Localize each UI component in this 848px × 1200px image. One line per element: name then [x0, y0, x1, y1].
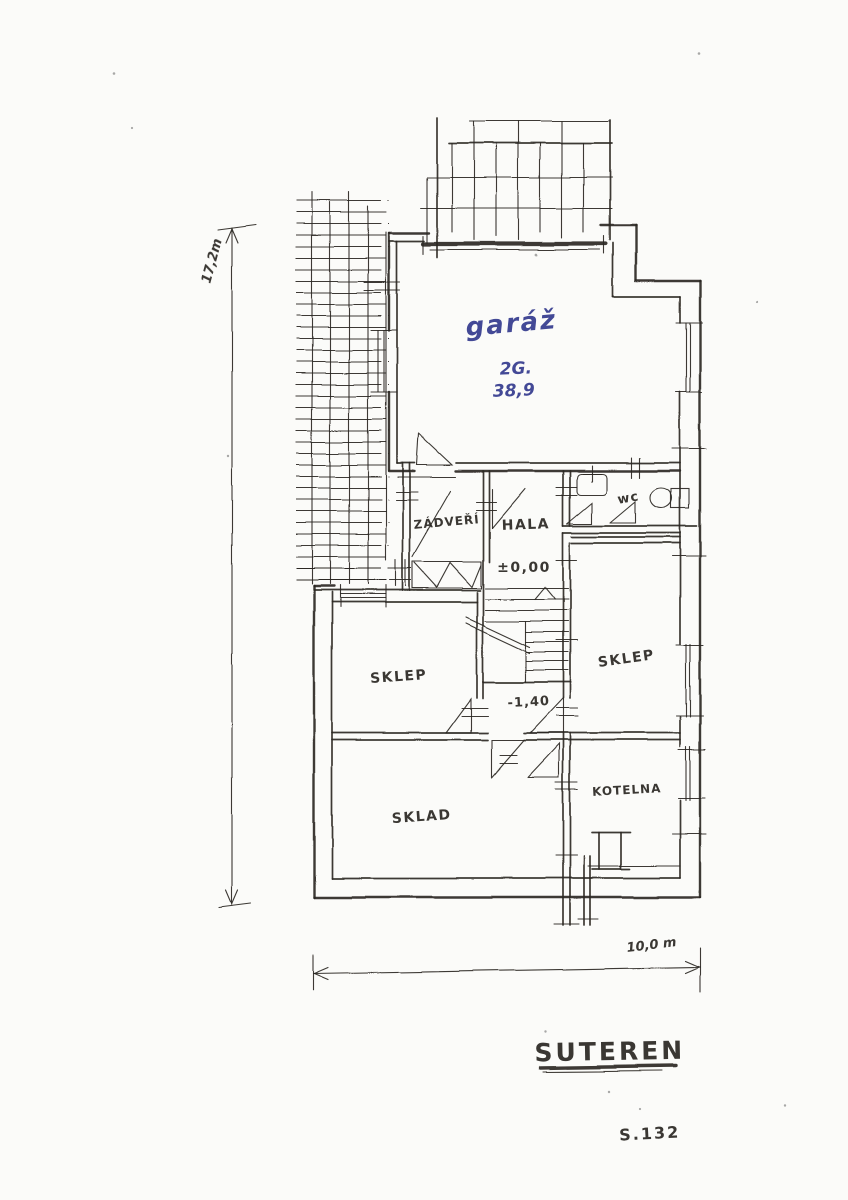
dimension-line-vertical [218, 225, 256, 907]
storage-label: SKLAD [391, 807, 452, 827]
scan-specks [113, 53, 788, 1111]
labels: garáž 2G. 38,9 ZÁDVEŘÍ HALA wc ±0,00 -1,… [199, 237, 685, 1144]
scanned-floor-plan-sheet: garáž 2G. 38,9 ZÁDVEŘÍ HALA wc ±0,00 -1,… [0, 0, 848, 1200]
door-boiler-room [528, 744, 559, 777]
horizontal-dimension-label: 10,0 m [626, 935, 678, 956]
basement-room-walls [314, 586, 700, 897]
level-entry-label: ±0,00 [497, 560, 551, 576]
hatched-ramp-symbol-bottom [296, 560, 412, 586]
floor-title: SUTEREN [534, 1036, 685, 1068]
sheet-code: S.132 [619, 1122, 681, 1144]
cellar-left-label: SKLEP [370, 667, 428, 687]
garage-label: garáž [464, 305, 558, 343]
garage-area-label: 38,9 [493, 380, 536, 401]
garage-code-label: 2G. [499, 358, 532, 379]
hatched-ramp-symbol [296, 192, 389, 584]
level-basement-label: -1,40 [507, 694, 550, 711]
boiler-icon [592, 833, 630, 869]
hall-label: HALA [501, 516, 550, 534]
door-swing-symbols [413, 434, 635, 777]
wc-label: wc [616, 489, 640, 508]
driveway-ramp-hatch [296, 192, 412, 586]
title-underline [540, 1066, 676, 1072]
stair-direction-arrow [535, 587, 555, 599]
cellar-right-label: SKLEP [597, 647, 656, 671]
dimension-line-horizontal [313, 948, 700, 992]
boiler-room-label: KOTELNA [592, 781, 662, 799]
vestibule-label: ZÁDVEŘÍ [413, 511, 480, 532]
entrance-stairs [421, 118, 612, 258]
door-storage [492, 740, 524, 777]
toilet-icon [650, 488, 672, 508]
floor-plan-canvas: garáž 2G. 38,9 ZÁDVEŘÍ HALA wc ±0,00 -1,… [0, 0, 848, 1200]
vertical-dimension-label: 17,2m [199, 237, 225, 285]
door-garage-vestibule [417, 434, 452, 465]
staircase-symbol [466, 587, 570, 682]
